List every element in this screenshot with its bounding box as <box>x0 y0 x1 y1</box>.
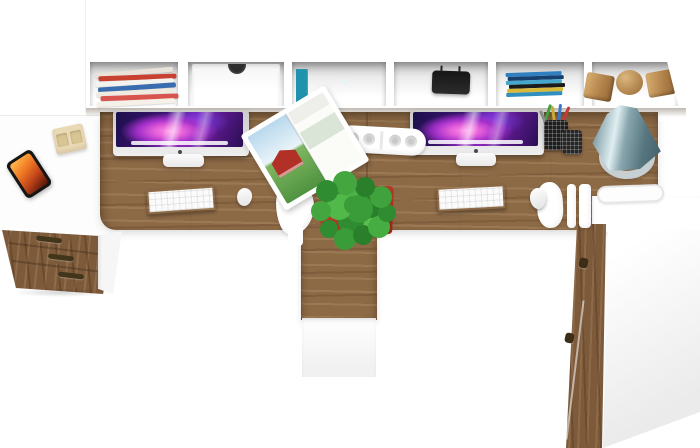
speaker <box>432 70 471 94</box>
imac-left <box>113 110 249 156</box>
power-socket <box>405 135 418 148</box>
imac-stand <box>163 154 204 167</box>
chair-leg <box>288 226 303 246</box>
wood-sphere <box>616 70 643 95</box>
chair-leg <box>579 184 591 228</box>
power-socket <box>389 134 402 147</box>
cabinet-shadow <box>14 288 108 297</box>
drawer-handle <box>48 253 74 261</box>
imac-screen <box>413 112 538 146</box>
power-strip-divider <box>380 131 384 150</box>
chair-leg <box>567 184 576 228</box>
drawer-handle <box>58 271 84 279</box>
pen-cup <box>562 130 582 154</box>
wood-cube <box>583 72 615 102</box>
potted-plant <box>344 196 362 214</box>
magazine-stack <box>95 68 177 108</box>
clock-face <box>56 132 69 147</box>
red-barn <box>268 143 304 178</box>
finger-hole <box>228 64 246 74</box>
book-logo <box>341 78 349 86</box>
right-cabinet-side <box>600 220 700 448</box>
imac-screen <box>116 112 243 147</box>
paper-tray <box>597 184 665 204</box>
keyboard <box>435 183 506 213</box>
imac-stand <box>456 153 496 166</box>
speaker-wire <box>440 66 442 72</box>
shelf-drawer <box>192 64 280 106</box>
power-socket <box>363 133 376 146</box>
drawer-handle <box>36 235 62 243</box>
workstation-scene <box>0 0 700 448</box>
imac-right <box>410 110 544 155</box>
dvd-case <box>506 91 562 97</box>
cabinet-side-panel <box>98 230 122 294</box>
speaker-wire <box>458 66 460 72</box>
keyboard <box>145 185 217 216</box>
pedestal-front <box>302 318 376 377</box>
pen-cup-group <box>538 104 586 156</box>
clock-face <box>70 130 83 145</box>
dvd-stack <box>506 71 567 101</box>
